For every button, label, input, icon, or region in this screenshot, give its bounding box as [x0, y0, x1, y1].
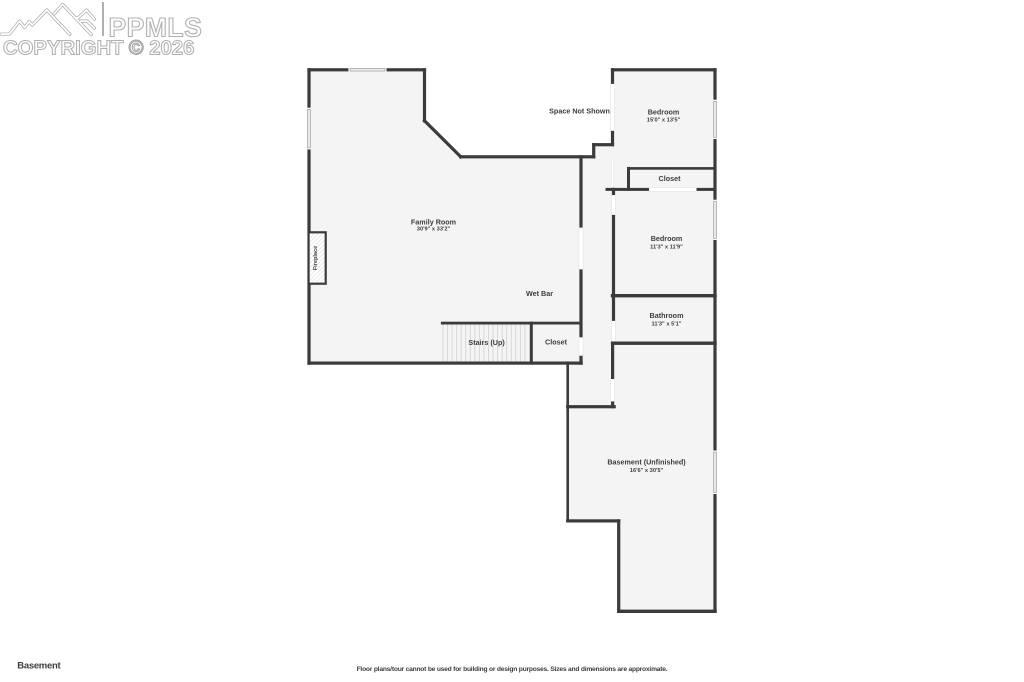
svg-text:Basement: Basement [17, 661, 61, 672]
svg-text:Stairs (Up): Stairs (Up) [468, 338, 505, 347]
svg-text:Closet: Closet [545, 337, 568, 346]
svg-text:Closet: Closet [659, 174, 682, 183]
svg-text:2026: 2026 [149, 38, 194, 60]
svg-text:11'3" x 5'1": 11'3" x 5'1" [652, 321, 682, 327]
svg-text:16'6" x 30'5": 16'6" x 30'5" [630, 468, 664, 474]
svg-text:Bathroom: Bathroom [650, 311, 684, 320]
svg-text:Wet Bar: Wet Bar [526, 289, 553, 298]
svg-text:Bedroom: Bedroom [648, 108, 680, 117]
svg-text:©: © [129, 38, 144, 60]
svg-text:Bedroom: Bedroom [651, 234, 683, 243]
svg-text:15'0" x 13'5": 15'0" x 13'5" [647, 117, 681, 123]
svg-text:Floor plans/tour cannot be use: Floor plans/tour cannot be used for buil… [357, 666, 668, 673]
svg-text:Family Room: Family Room [411, 217, 456, 226]
svg-text:Space Not Shown: Space Not Shown [549, 106, 610, 115]
svg-text:COPYRIGHT: COPYRIGHT [3, 38, 124, 60]
svg-text:Basement (Unfinished): Basement (Unfinished) [607, 458, 686, 467]
svg-text:11'3" x 11'9": 11'3" x 11'9" [650, 244, 683, 250]
svg-text:Fireplace: Fireplace [313, 246, 319, 271]
svg-text:30'9" x 33'2": 30'9" x 33'2" [417, 226, 451, 232]
